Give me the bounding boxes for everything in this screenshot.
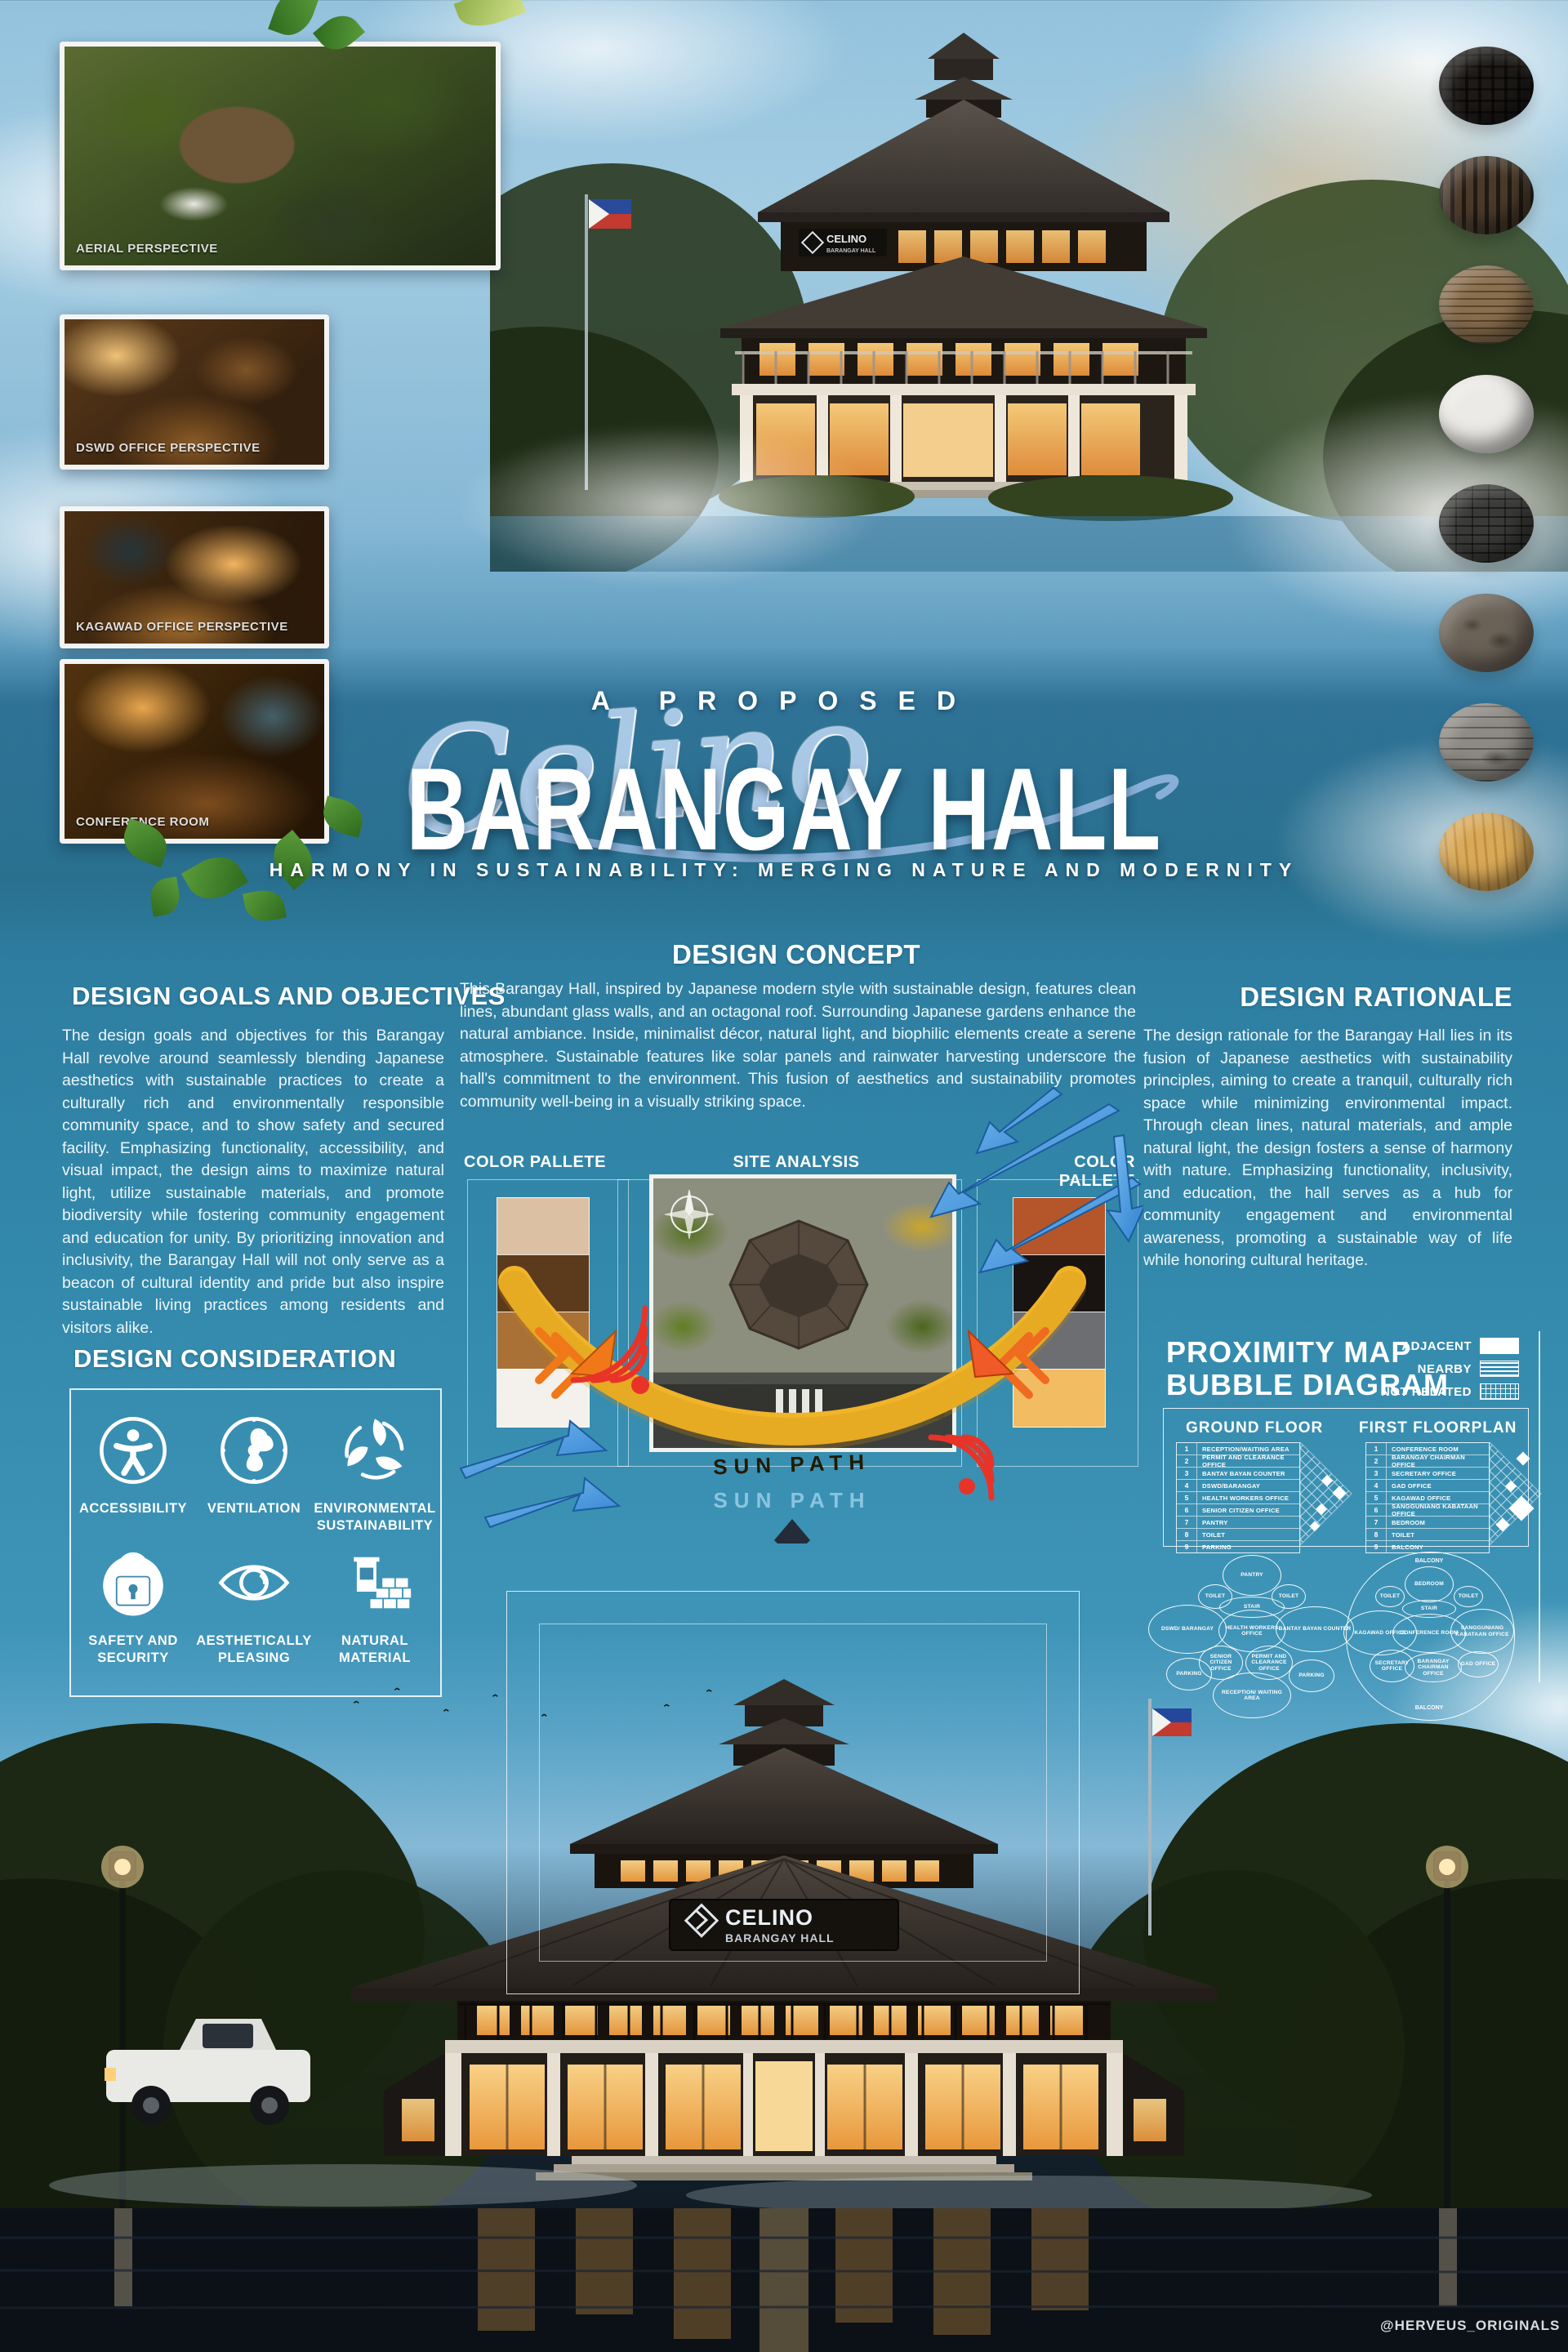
bird-icon: ⌃ — [351, 1699, 362, 1710]
bricks-icon — [337, 1545, 412, 1620]
row-num: 9 — [1366, 1541, 1387, 1552]
poster-page: { "title": { "kicker": "A PROPOSED", "sc… — [0, 0, 1568, 2352]
consideration-safety: SAFETY AND SECURITY — [72, 1545, 194, 1667]
row-name: SECRETARY OFFICE — [1387, 1468, 1489, 1479]
row-name: BALCONY — [1387, 1541, 1489, 1552]
row-name: TOILET — [1387, 1529, 1489, 1540]
svg-text:SUN PATH: SUN PATH — [713, 1450, 871, 1480]
row-num: 3 — [1177, 1468, 1197, 1479]
ground-floor-matrix — [1300, 1442, 1359, 1546]
table-row: 3SECRETARY OFFICE — [1366, 1468, 1489, 1480]
table-row: 6SENIOR CITIZEN OFFICE — [1177, 1504, 1299, 1517]
credit-watermark: @HERVEUS_ORIGINALS — [1380, 2318, 1560, 2334]
bird-icon: ⌃ — [539, 1713, 550, 1723]
table-row: 4GAD OFFICE — [1366, 1480, 1489, 1492]
legend-swatch-solid — [1480, 1338, 1519, 1354]
accessibility-icon — [96, 1413, 171, 1488]
row-num: 4 — [1177, 1480, 1197, 1491]
row-name: BARANGAY CHAIRMAN OFFICE — [1387, 1455, 1489, 1467]
row-num: 5 — [1366, 1492, 1387, 1503]
row-num: 8 — [1366, 1529, 1387, 1540]
table-row: 4DSWD/BARANGAY — [1177, 1480, 1299, 1492]
row-name: RECEPTION/WAITING AREA — [1197, 1443, 1299, 1454]
ground-floor-title: GROUND FLOOR — [1186, 1419, 1323, 1437]
legend-swatch-dotted — [1480, 1383, 1519, 1400]
consideration-label: VENTILATION — [193, 1500, 315, 1517]
site-analysis-annotations: SUN PATH SUN PATH — [441, 1086, 1143, 1543]
legend-label: NEARBY — [1418, 1362, 1472, 1376]
table-row: 7PANTRY — [1177, 1517, 1299, 1529]
table-row: 5HEALTH WORKERS OFFICE — [1177, 1492, 1299, 1504]
row-name: CONFERENCE ROOM — [1387, 1443, 1489, 1454]
lock-icon — [96, 1545, 171, 1620]
bubble-room: TOILET — [1375, 1586, 1405, 1607]
bird-icon: ⌃ — [392, 1686, 403, 1697]
goals-heading: DESIGN GOALS AND OBJECTIVES — [72, 982, 506, 1011]
row-name: PERMIT AND CLEARANCE OFFICE — [1197, 1455, 1299, 1467]
table-row: 6SANGGUNIANG KABATAAN OFFICE — [1366, 1504, 1489, 1517]
title-main-text: BARANGAY HALL — [406, 751, 1161, 868]
eye-icon — [216, 1545, 292, 1620]
fan-icon — [216, 1413, 292, 1488]
legend-label: NOT RELATED — [1381, 1385, 1472, 1399]
bird-icon: ⌃ — [661, 1703, 672, 1713]
concept-heading: DESIGN CONCEPT — [457, 939, 1135, 970]
row-num: 8 — [1177, 1529, 1197, 1540]
consideration-label: ACCESSIBILITY — [72, 1500, 194, 1517]
row-name: TOILET — [1197, 1529, 1299, 1540]
consideration-ventilation: VENTILATION — [193, 1413, 315, 1517]
consideration-environmental: ENVIRONMENTAL SUSTAINABILITY — [314, 1413, 436, 1535]
table-row: 2BARANGAY CHAIRMAN OFFICE — [1366, 1455, 1489, 1468]
goals-body: The design goals and objectives for this… — [62, 1025, 444, 1339]
rationale-heading: DESIGN RATIONALE — [1143, 982, 1512, 1013]
consideration-material: NATURAL MATERIAL — [314, 1545, 436, 1667]
row-num: 6 — [1366, 1504, 1387, 1516]
row-name: SENIOR CITIZEN OFFICE — [1197, 1504, 1299, 1516]
first-floor-title: FIRST FLOORPLAN — [1359, 1419, 1517, 1437]
consideration-label: ENVIRONMENTAL SUSTAINABILITY — [314, 1500, 436, 1535]
bubble-room: PANTRY — [1223, 1555, 1281, 1596]
bird-icon: ⌃ — [704, 1688, 715, 1699]
bird-icon: ⌃ — [441, 1708, 452, 1718]
consideration-aesthetics: AESTHETICALLY PLEASING — [193, 1545, 315, 1667]
row-name: PANTRY — [1197, 1517, 1299, 1528]
table-row: 8TOILET — [1177, 1529, 1299, 1541]
consideration-label: NATURAL MATERIAL — [314, 1633, 436, 1667]
legend-swatch-striped — [1480, 1361, 1519, 1377]
row-name: PARKING — [1197, 1541, 1299, 1552]
table-row: 9BALCONY — [1366, 1541, 1489, 1552]
svg-text:SUN PATH: SUN PATH — [713, 1488, 871, 1512]
bubble-room: TOILET — [1454, 1586, 1483, 1607]
row-num: 6 — [1177, 1504, 1197, 1516]
bird-icon: ⌃ — [490, 1693, 501, 1704]
row-name: KAGAWAD OFFICE — [1387, 1492, 1489, 1503]
table-row: 3BANTAY BAYAN COUNTER — [1177, 1468, 1299, 1480]
row-num: 7 — [1366, 1517, 1387, 1528]
table-row: 2PERMIT AND CLEARANCE OFFICE — [1177, 1455, 1299, 1468]
row-num: 2 — [1366, 1455, 1387, 1467]
decor-frame-inner — [539, 1624, 1047, 1962]
consideration-accessibility: ACCESSIBILITY — [72, 1413, 194, 1517]
ring-label-top: BALCONY — [1396, 1558, 1462, 1564]
row-num: 4 — [1366, 1480, 1387, 1491]
row-num: 2 — [1177, 1455, 1197, 1467]
row-name: GAD OFFICE — [1387, 1480, 1489, 1491]
row-num: 9 — [1177, 1541, 1197, 1552]
rationale-body: The design rationale for the Barangay Ha… — [1143, 1025, 1512, 1272]
row-name: SANGGUNIANG KABATAAN OFFICE — [1387, 1504, 1489, 1516]
consideration-label: AESTHETICALLY PLEASING — [193, 1633, 315, 1667]
bubble-room: BANTAY BAYAN COUNTER — [1276, 1606, 1354, 1652]
row-num: 5 — [1177, 1492, 1197, 1503]
legend-nearby: NEARBY — [1323, 1361, 1519, 1377]
row-num: 3 — [1366, 1468, 1387, 1479]
ground-floor-table: 1RECEPTION/WAITING AREA 2PERMIT AND CLEA… — [1176, 1442, 1300, 1553]
table-row: 7BEDROOM — [1366, 1517, 1489, 1529]
legend-not-related: NOT RELATED — [1323, 1383, 1519, 1400]
table-row: 8TOILET — [1366, 1529, 1489, 1541]
legend-label: ADJACENT — [1401, 1339, 1472, 1353]
bubble-room: BEDROOM — [1405, 1566, 1454, 1602]
recycle-leaves-icon — [337, 1413, 412, 1488]
first-floor-table: 1CONFERENCE ROOM 2BARANGAY CHAIRMAN OFFI… — [1365, 1442, 1490, 1553]
row-name: BEDROOM — [1387, 1517, 1489, 1528]
row-num: 1 — [1366, 1443, 1387, 1454]
table-row: 9PARKING — [1177, 1541, 1299, 1552]
legend-adjacent: ADJACENT — [1323, 1338, 1519, 1354]
title-subtitle: HARMONY IN SUSTAINABILITY: MERGING NATUR… — [0, 859, 1568, 881]
row-num: 7 — [1177, 1517, 1197, 1528]
row-name: HEALTH WORKERS OFFICE — [1197, 1492, 1299, 1503]
consideration-label: SAFETY AND SECURITY — [72, 1633, 194, 1667]
row-name: BANTAY BAYAN COUNTER — [1197, 1468, 1299, 1479]
consideration-heading: DESIGN CONSIDERATION — [73, 1344, 396, 1374]
row-name: DSWD/BARANGAY — [1197, 1480, 1299, 1491]
title-main: BARANGAY HALL — [0, 758, 1568, 862]
row-num: 1 — [1177, 1443, 1197, 1454]
